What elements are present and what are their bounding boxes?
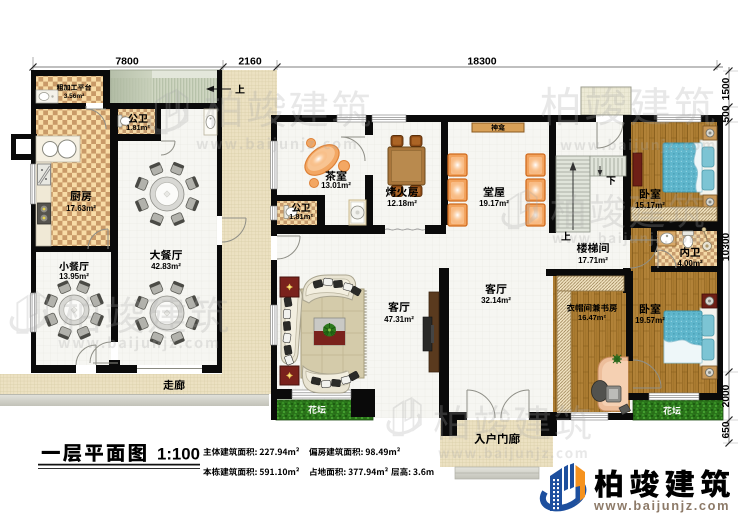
svg-text:2160: 2160	[238, 56, 262, 68]
svg-text:13.01m²: 13.01m²	[321, 181, 351, 190]
svg-text:12.18m²: 12.18m²	[387, 199, 417, 208]
svg-text:1.81m²: 1.81m²	[289, 212, 313, 221]
svg-text:www.baijunjz.com: www.baijunjz.com	[593, 498, 730, 513]
svg-text:2000: 2000	[721, 384, 732, 407]
svg-text:18300: 18300	[467, 56, 496, 68]
svg-text:42.83m²: 42.83m²	[151, 262, 181, 271]
svg-text:650: 650	[721, 421, 732, 438]
svg-text:13.95m²: 13.95m²	[59, 272, 89, 281]
svg-text:17.63m²: 17.63m²	[66, 204, 96, 213]
svg-text:15.17m²: 15.17m²	[635, 201, 665, 210]
svg-text:7800: 7800	[115, 56, 139, 68]
svg-text:19.17m²: 19.17m²	[479, 199, 509, 208]
svg-text:10300: 10300	[721, 233, 732, 262]
svg-text:3.56m²: 3.56m²	[64, 93, 85, 100]
svg-text:1500: 1500	[721, 77, 732, 100]
svg-text:1.81m²: 1.81m²	[126, 123, 150, 132]
svg-text:16.47m²: 16.47m²	[578, 313, 606, 322]
svg-text:1:100: 1:100	[157, 445, 200, 464]
svg-text:47.31m²: 47.31m²	[384, 315, 414, 324]
svg-text:32.14m²: 32.14m²	[481, 296, 511, 305]
svg-text:500: 500	[721, 105, 732, 122]
svg-text:4.00m²: 4.00m²	[677, 259, 703, 268]
svg-text:17.71m²: 17.71m²	[578, 256, 608, 265]
svg-text:19.57m²: 19.57m²	[635, 316, 665, 325]
